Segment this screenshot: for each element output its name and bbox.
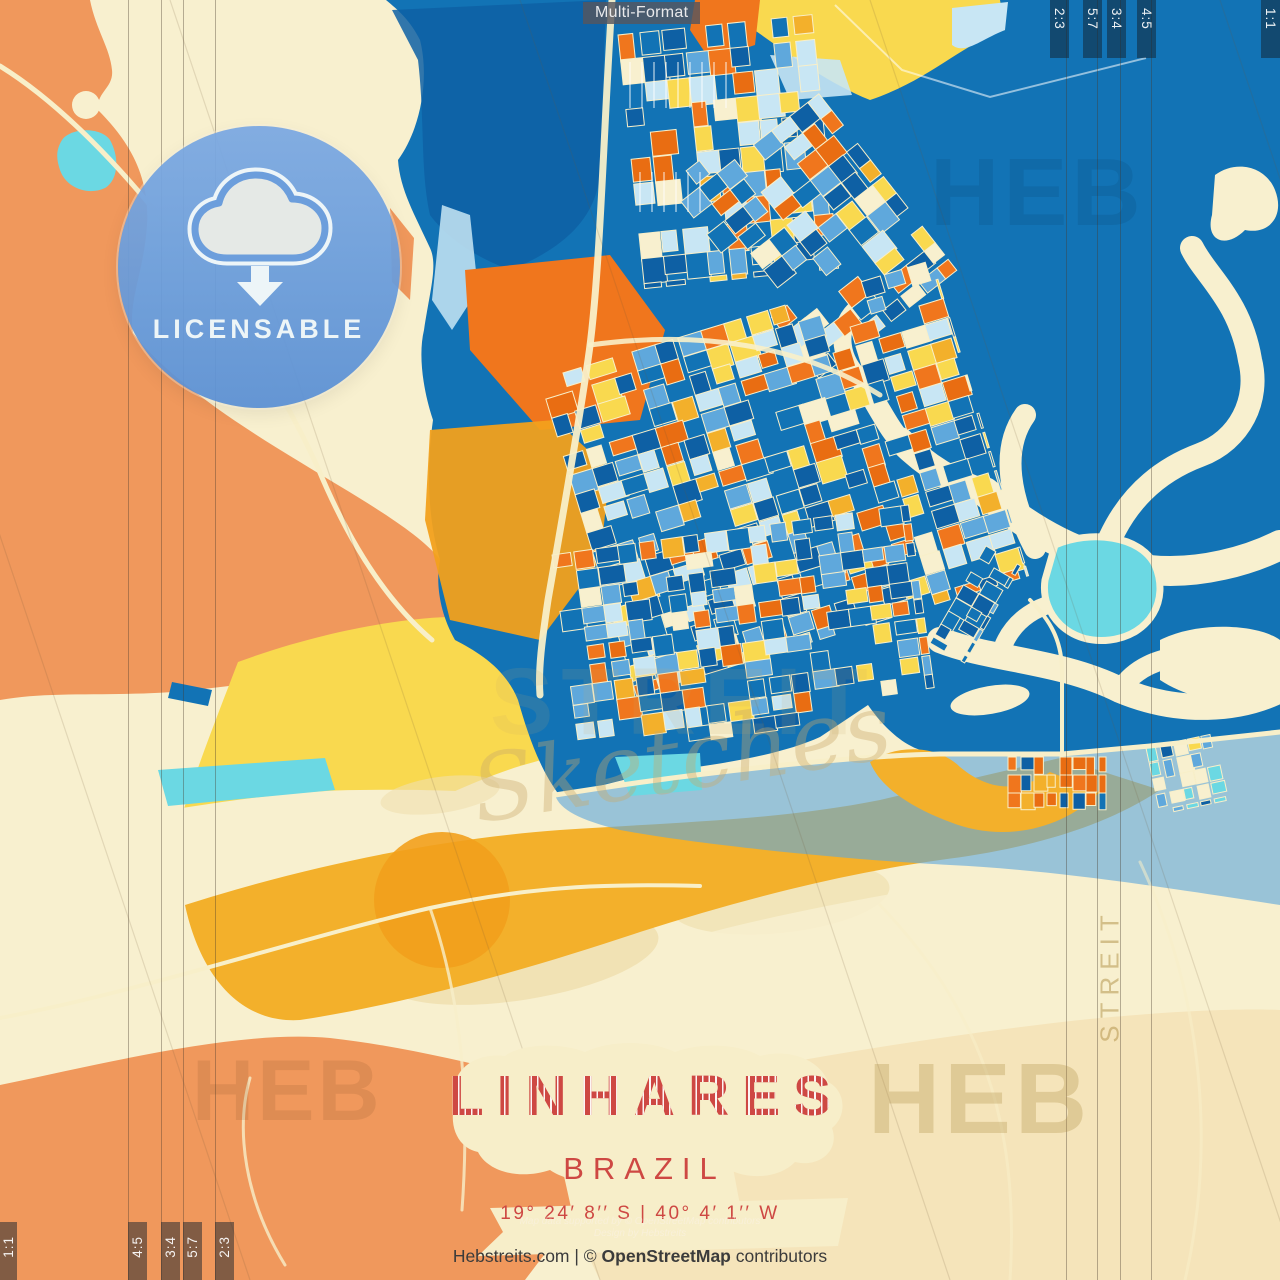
title-block: LINHARESLINHARES BRAZIL 19° 24′ 8′′ S | … bbox=[400, 1040, 880, 1225]
crop-format-badge: 4:5 bbox=[1137, 0, 1156, 58]
cloud-download-icon bbox=[171, 158, 347, 308]
fine-print: Map data supported by © OpenStreetMap co… bbox=[0, 1216, 1280, 1240]
licensable-label: LICENSABLE bbox=[153, 314, 366, 345]
city-title: LINHARESLINHARES bbox=[400, 1068, 880, 1125]
crop-format-badge: 3:4 bbox=[1107, 0, 1126, 58]
multi-format-chip: Multi-Format bbox=[583, 2, 700, 24]
crop-format-badge: 1:1 bbox=[1261, 0, 1280, 58]
country-subtitle: BRAZIL bbox=[400, 1151, 880, 1187]
map-poster-image[interactable]: HEB HEB HEB STREIT STREIT Sketches Multi… bbox=[0, 0, 1280, 1280]
crop-format-badge: 2:3 bbox=[1050, 0, 1069, 58]
licensable-badge: LICENSABLE bbox=[118, 126, 400, 408]
crop-format-badge: 5:7 bbox=[1083, 0, 1102, 58]
attribution-credit: Hebstreits.com | © OpenStreetMap contrib… bbox=[0, 1246, 1280, 1267]
